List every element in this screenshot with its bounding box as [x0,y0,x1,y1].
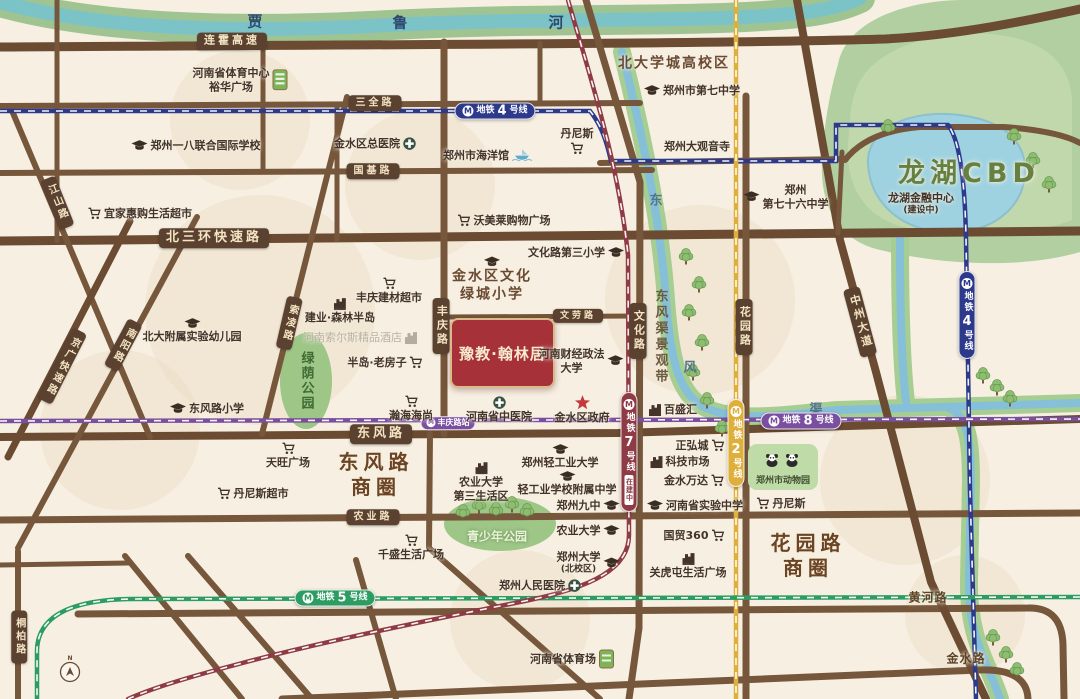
metro-badge-m4: M地铁4号线 [959,271,976,359]
poi-qiansheng-plaza: 千盛生活广场 [378,534,444,562]
poi-peninsula-old-house: 半岛·老房子 [347,356,422,370]
metro-badge-status: 在建中 [625,475,634,505]
poi-wenhualu-3rd-primary: 文化路第三小学 [528,246,624,260]
poi-zhengzhou-univ-north-campus: 郑州大学(北校区) [557,551,620,576]
road-label-文化路: 文化路 [630,303,647,359]
poi-label: 农业大学 [459,475,503,489]
poi-label: 轻工业学校附属中学 [518,483,617,497]
cart-icon [405,395,418,408]
poi-label: 宜家惠购生活超市 [104,207,192,221]
cross-icon [568,580,581,593]
building-icon [682,552,694,565]
metro-badge-text: 8 [803,415,812,428]
metro-badge-text: 地铁 [625,412,634,434]
cap-icon [184,318,200,329]
cap-icon [604,501,620,512]
poi-label: 河南省中医院 [466,410,532,424]
poi-label: 大学 [561,361,583,375]
poi-zhenghongcheng: 正弘城 [676,439,725,453]
dongfengqu-scenic-belt-label: 东风渠景观带 [651,289,670,385]
building-icon [334,297,346,310]
metro-badge-m8: M地铁8号线 [760,413,841,430]
poi-jinshui-district-hospital: 金水区总医院 [334,137,416,151]
poi-label: 花园路 [771,531,846,556]
poi-label: 半岛·老房子 [347,356,406,370]
poi-label: 丹尼斯 [773,497,806,511]
poi-label: 金水区文化 [452,269,532,287]
cart-icon [571,142,584,155]
cart-icon [711,530,724,543]
lvyin-park-label: 绿荫公园 [297,351,316,411]
poi-dongfeng-road-district: 东风路商圈 [339,450,414,500]
poi-label: 东风路 [339,450,414,475]
poi-label: 绿城小学 [460,286,524,304]
metro-badge-text: 4 [497,105,506,118]
metro-badge-text: 地铁 [963,291,972,313]
metro-badge-m4: M地铁4号线 [454,103,535,120]
poi-no7-middle-school: 郑州市第七中学 [644,84,740,98]
panda-icon [760,449,806,473]
road-label-文劳路: 文劳路 [553,309,603,323]
poi-no76-middle-school: 郑州第七十六中学 [744,183,829,211]
cart-icon [88,208,101,221]
poi-label: 郑州 [785,183,807,197]
road-label-丰庆路: 丰庆路 [433,298,450,354]
stadium-icon [599,650,614,669]
poi-label: 河南省体育场 [530,652,596,666]
poi-dongfenglu-primary-school: 东风路小学 [170,402,244,416]
poi-label: 郑州市海洋馆 [443,149,509,163]
tree-icon [976,368,990,384]
metro-logo-icon: M [462,106,473,117]
building-gray-icon [405,332,417,345]
metro-badge-text: 地铁 [476,107,494,116]
poi-people-hospital: 郑州人民医院 [499,579,581,593]
road-label-桐柏路: 桐柏路 [11,611,27,664]
jialu-river [0,0,860,29]
metro-badge-text: 号线 [510,107,528,116]
metro-badge-m2: M地铁2号线 [728,399,745,487]
metro-badge-text: 4 [962,315,971,328]
poi-label: 丹尼斯超市 [234,487,289,501]
ship-icon [512,150,533,163]
poi-light-industry-university: 郑州轻工业大学 [522,444,599,470]
metro-logo-icon: M [962,278,973,289]
poi-huanghe-road-name: 黄河路 [908,591,947,606]
poi-label: 商圈 [783,556,833,581]
poi-label: 郑州九中 [557,499,601,513]
cap-icon [552,444,568,455]
poi-label: 河南省体育中心 [193,66,270,80]
cap-icon [170,404,186,415]
cap-icon [744,192,760,203]
poi-label: 建业·森林半岛 [305,311,375,325]
metro-badge-text: 号线 [732,458,741,480]
poi-henan-tcm-hospital: 河南省中医院 [466,396,532,424]
poi-label: 河南省实验中学 [666,499,743,513]
metro-badge-text: 7 [624,436,633,449]
metro-badge-text: 2 [731,443,740,456]
metro-badge-m7: M地铁7号线在建中 [621,392,638,512]
road-label-花园路: 花园路 [736,299,753,355]
poi-henan-sports-center: 河南省体育中心裕华广场 [193,66,288,94]
poi-longhu-financial-center: 龙湖金融中心(建设中) [888,192,954,217]
metro-badge-text: 号线 [350,594,368,603]
cart-icon [711,475,724,488]
building-icon [649,404,661,417]
metro-badge-text: 地铁 [732,419,741,441]
poi-label: 金水路 [946,652,985,667]
poi-finance-law-university: 河南财经政法大学 [539,347,624,375]
poi-lvcheng-primary-school: 金水区文化绿城小学 [452,257,532,304]
cap-icon [604,558,620,569]
building-green-icon [273,70,288,91]
cart-icon [757,498,770,511]
poi-agricultural-university: 农业大学 [557,524,620,538]
cross-icon [493,396,506,409]
metro-badge-m5: M地铁5号线 [294,590,375,607]
poi-label: 黄河路 [908,591,947,606]
road-label-国基路: 国基路 [347,163,400,179]
tree-icon [990,380,1004,396]
metro-badge-text: 号线 [963,330,972,352]
poi-label: 沃美莱购物广场 [474,214,551,228]
poi-dennis-east: 丹尼斯 [757,497,806,511]
poi-label: (建设中) [903,205,938,216]
poi-jinshui-government: 金水区政府 [555,395,610,425]
poi-youth-park-label: 青少年公园 [467,530,527,545]
poi-label: 天旺广场 [266,456,310,470]
poi-label: 金水区政府 [555,411,610,425]
poi-label: 青少年公园 [467,530,527,545]
metro-badge-text: 地铁 [316,594,334,603]
poi-label: 金水万达 [664,474,708,488]
svg-text:N: N [67,655,72,662]
poi-label: 郑州大学 [557,551,601,565]
water-name-char: 河 [548,12,563,33]
poi-label: 河南索尔斯精品酒店 [303,331,402,345]
poi-label: 金水区总医院 [334,137,400,151]
cap-icon [608,356,624,367]
road-label-北三环快速路: 北三环快速路 [159,228,269,248]
poi-label: 郑州一八联合国际学校 [151,139,261,153]
cap-icon [647,501,663,512]
poi-label: 郑州大观音寺 [664,140,730,154]
cart-icon [405,534,418,547]
zhengzhou-zoo: 郑州市动物园 [748,444,818,490]
water-name-char: 东 [649,190,662,209]
poi-pku-affiliated-kindergarten: 北大附属实验幼儿园 [143,318,242,344]
poi-hotel-watermark: 河南索尔斯精品酒店 [303,331,417,345]
poi-label: 丹尼斯 [561,127,594,141]
poi-label: 关虎屯生活广场 [650,566,727,580]
road-label-三全路: 三全路 [349,95,402,111]
metro-line-m8 [0,419,1080,421]
cart-icon [218,488,231,501]
poi-label: 第三生活区 [454,489,509,503]
metro-logo-icon: M [768,416,779,427]
cap-icon [604,526,620,537]
poi-label: 文化路第三小学 [528,246,605,260]
poi-label: 郑州轻工业大学 [522,456,599,470]
poi-label: 北大学城高校区 [618,55,730,73]
poi-huayuan-road-district: 花园路商圈 [771,531,846,581]
station-name: 丰庆路站 [438,418,470,428]
cap-icon [132,141,148,152]
poi-ikea-huigou-market: 宜家惠购生活超市 [88,207,192,221]
cross-icon [403,138,416,151]
poi-henan-experimental-school: 河南省实验中学 [647,499,743,513]
zoo-label: 郑州市动物园 [756,473,810,486]
poi-agri-univ-3rd-living-area: 农业大学第三生活区 [454,461,509,503]
metro-logo-icon: M [302,593,313,604]
metro-badge-text: 号线 [816,417,834,426]
poi-label: 郑州市第七中学 [663,84,740,98]
poi-jinshui-road-name: 金水路 [946,652,985,667]
poi-label: 龙湖金融中心 [888,192,954,206]
poi-jinshui-wanda: 金水万达 [664,474,724,488]
poi-label: 郑州人民医院 [499,579,565,593]
road-label-东风路: 东风路 [350,424,412,444]
poi-longhu-cbd: 龙湖CBD [898,157,1040,191]
poi-guanyin-temple: 郑州大观音寺 [664,140,730,154]
cap-icon [608,248,624,259]
poi-dennis-market: 丹尼斯超市 [218,487,289,501]
cart-icon [383,277,396,290]
water-name-char: 鲁 [392,12,407,33]
poi-tianwang-plaza: 天旺广场 [266,442,310,470]
cart-icon [410,357,423,370]
poi-label: 北大附属实验幼儿园 [143,330,242,344]
road-label-连霍高速: 连霍高速 [197,33,267,50]
cart-icon [712,440,725,453]
poi-label: 河南财经政法 [539,347,605,361]
poi-label: 千盛生活广场 [378,548,444,562]
poi-guomao-360: 国贸360 [664,529,725,543]
poi-womeilai-mall: 沃美莱购物广场 [458,214,551,228]
compass-icon: N [61,655,80,682]
metro-logo-icon: M [624,399,635,410]
poi-label: 东风路小学 [189,402,244,416]
poi-label: 国贸360 [664,529,709,543]
poi-dennis-north: 丹尼斯 [561,127,594,155]
cap-icon [559,471,575,482]
poi-zhengzhou-9th-middle: 郑州九中 [557,499,620,513]
poi-label: 第七十六中学 [763,197,829,211]
poi-hanhai-haishang: 瀚海海尚 [389,395,433,423]
metro-logo-icon: M [731,406,742,417]
poi-henan-stadium: 河南省体育场 [530,650,614,669]
cap-icon [484,257,500,268]
metro-badge-text: 地铁 [782,417,800,426]
star-icon [574,395,590,410]
poi-jianye-forest-peninsula: 建业·森林半岛 [305,297,375,325]
cart-icon [282,442,295,455]
poi-baishenghui: 百盛汇 [649,403,697,417]
cap-icon [644,86,660,97]
building-icon [475,461,487,474]
poi-label: 科技市场 [666,455,710,469]
metro-badge-text: 号线 [625,451,634,473]
poi-zhengzhou-aquarium: 郑州市海洋馆 [443,149,533,163]
poi-beidaxuecheng-area: 北大学城高校区 [618,55,730,73]
poi-tech-market: 科技市场 [651,455,710,469]
poi-light-industry-affiliated-school: 轻工业学校附属中学 [518,471,617,497]
metro-badge-text: 5 [337,592,346,605]
poi-label: 龙湖CBD [898,157,1040,191]
building-icon [651,456,663,469]
road-label-农业路: 农业路 [347,509,400,525]
cart-icon [458,215,471,228]
poi-zhengzhou-18-intl-school: 郑州一八联合国际学校 [132,139,261,153]
location-map: N 豫教·翰林居 连霍高速三全路国基路北三环快速路文劳路东风路农业路丰庆路文化路… [0,0,1080,699]
water-name-char: 风 [683,357,696,376]
poi-label: 正弘城 [676,439,709,453]
poi-label: 商圈 [351,475,401,500]
poi-label: 瀚海海尚 [389,409,433,423]
poi-label: 百盛汇 [664,403,697,417]
poi-label: 农业大学 [557,524,601,538]
water-name-char: 贾 [247,11,262,32]
poi-guanhutun-plaza: 关虎屯生活广场 [650,552,727,580]
poi-label: 裕华广场 [209,80,253,94]
poi-label: (北校区) [561,564,596,575]
